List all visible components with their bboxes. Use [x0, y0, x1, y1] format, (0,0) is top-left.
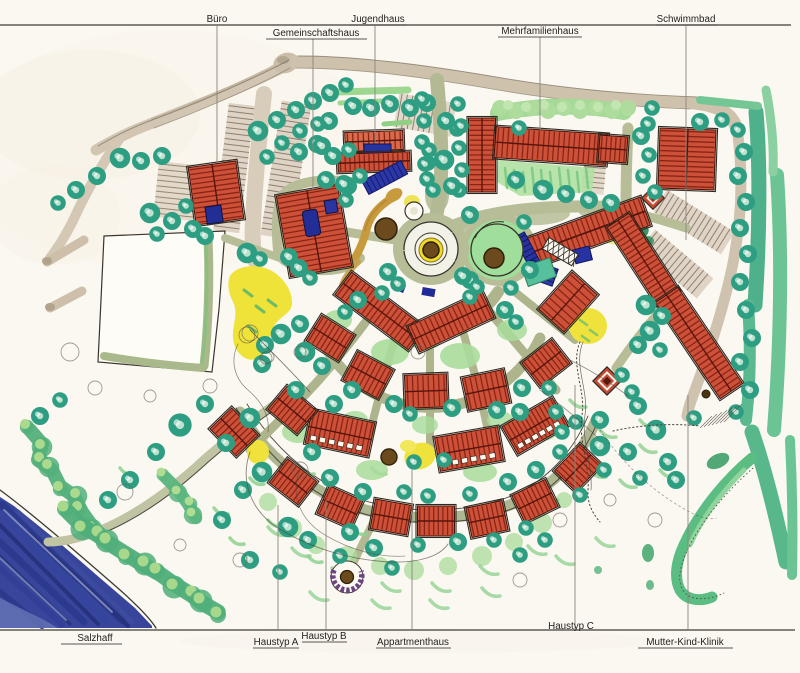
svg-text:Mehrfamilienhaus: Mehrfamilienhaus [501, 26, 578, 37]
svg-text:Haustyp B: Haustyp B [301, 631, 347, 642]
svg-text:Haustyp C: Haustyp C [548, 621, 594, 632]
svg-text:Appartmenthaus: Appartmenthaus [377, 637, 449, 648]
svg-text:Büro: Büro [207, 14, 228, 25]
svg-text:Jugendhaus: Jugendhaus [351, 14, 404, 25]
svg-text:Haustyp A: Haustyp A [254, 637, 299, 648]
svg-text:Salzhaff: Salzhaff [77, 633, 112, 644]
svg-text:Gemeinschaftshaus: Gemeinschaftshaus [273, 28, 360, 39]
svg-text:Schwimmbad: Schwimmbad [657, 14, 716, 25]
svg-text:Mutter-Kind-Klinik: Mutter-Kind-Klinik [646, 637, 723, 648]
